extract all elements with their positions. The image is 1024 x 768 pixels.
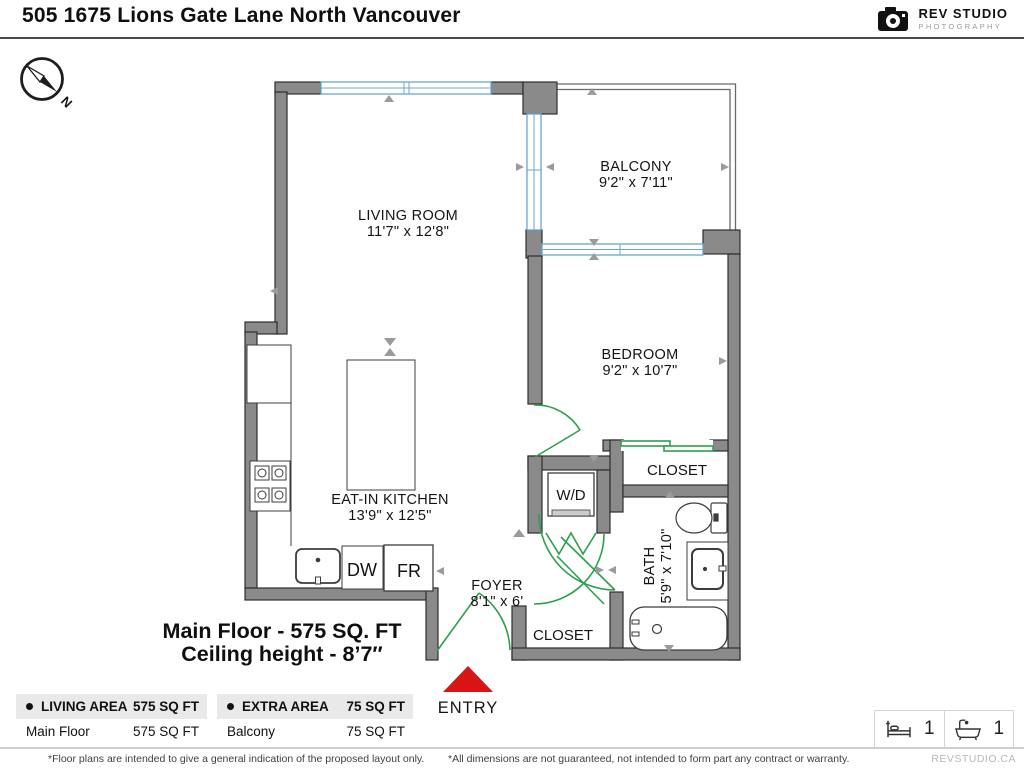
bedroom-closet-label: CLOSET [647,462,707,479]
extra-area-row: Balcony 75 SQ FT [217,719,413,743]
logo: REV STUDIO PHOTOGRAPHY [877,5,1008,33]
compass-icon: N [22,59,76,111]
bed-icon [884,718,914,740]
living-area-header-value: 575 SQ FT [133,699,199,714]
page-title: 505 1675 Lions Gate Lane North Vancouver [22,4,461,28]
floor-summary-line1: Main Floor - 575 SQ. FT [163,619,402,643]
fridge-label: FR [397,561,421,581]
bed-count: 1 [924,718,935,740]
floorplan-page: N [0,0,1024,768]
watermark: REVSTUDIO.CA [931,753,1016,765]
living-area-header-row: LIVING AREA 575 SQ FT [16,694,207,719]
kitchen-label: EAT-IN KITCHEN [331,492,449,508]
bedroom-label: BEDROOM [601,347,678,363]
extra-area-header-row: EXTRA AREA 75 SQ FT [217,694,413,719]
vanity-sink [687,542,728,600]
camera-icon [877,5,913,33]
kitchen-island [347,360,415,490]
logo-subtitle: PHOTOGRAPHY [919,23,1008,31]
washer-dryer-bifold-door [546,533,596,554]
living-room-label: LIVING ROOM [358,208,458,224]
bath-count-cell: 1 [944,711,1014,747]
bedroom-door [534,405,580,457]
bullet-icon [227,703,234,710]
bedroom-closet-sliding-door [621,440,713,451]
balcony-label: BALCONY [600,159,671,175]
floor-summary-line2: Ceiling height - 8’7″ [181,642,382,666]
extra-area-header: EXTRA AREA [227,699,329,714]
entry-arrow [443,666,493,692]
bedroom-window [542,244,703,255]
bedroom-dims: 9'2" x 10'7" [602,363,677,379]
stove [250,461,290,511]
extra-area-row-value: 75 SQ FT [346,724,405,739]
entry-label: ENTRY [438,699,499,717]
living-area-row-value: 575 SQ FT [133,724,199,739]
bathtub [630,607,727,650]
dishwasher-label: DW [347,560,377,580]
compass-north-label: N [58,93,75,110]
bed-count-cell: 1 [875,711,944,747]
kitchen-fixtures [247,345,433,591]
bath-dims: 5'9" x 7'10" [659,528,675,603]
footer-disclaimer-right: *All dimensions are not guaranteed, not … [448,753,849,765]
logo-texts: REV STUDIO PHOTOGRAPHY [919,7,1008,31]
balcony-railing [557,84,736,231]
footer-divider [0,747,1024,749]
kitchen-sink [296,549,340,584]
bath-count: 1 [993,718,1004,740]
living-room-dims: 11'7" x 12'8" [367,224,449,240]
living-area-row-label: Main Floor [26,724,90,739]
balcony-sliding-door [527,114,541,230]
living-area-header: LIVING AREA [26,699,128,714]
entry-closet-label: CLOSET [533,627,593,644]
kitchen-dims: 13'9" x 12'5" [348,508,431,524]
extra-area-row-label: Balcony [227,724,275,739]
bath-label: BATH [642,547,658,586]
footer-disclaimer-left: *Floor plans are intended to give a gene… [48,753,424,765]
foyer-dims: 8'1" x 6' [471,594,524,610]
floorplan-drawing: N [0,0,1024,768]
washer-dryer-label: W/D [556,487,585,504]
header-divider [0,37,1024,39]
upper-counter [247,345,291,403]
bed-bath-panel: 1 1 [874,710,1014,748]
living-room-window [321,82,491,94]
living-area-row: Main Floor 575 SQ FT [16,719,207,743]
entry-marker: ENTRY [438,666,499,717]
balcony-dims: 9'2" x 7'11" [599,175,673,191]
bath-icon [953,717,983,741]
foyer-label: FOYER [471,578,522,594]
bullet-icon [26,703,33,710]
logo-name: REV STUDIO [919,7,1008,21]
extra-area-table: EXTRA AREA 75 SQ FT Balcony 75 SQ FT [217,694,413,743]
living-area-table: LIVING AREA 575 SQ FT Main Floor 575 SQ … [16,694,207,743]
extra-area-header-value: 75 SQ FT [346,699,405,714]
toilet [676,503,727,533]
